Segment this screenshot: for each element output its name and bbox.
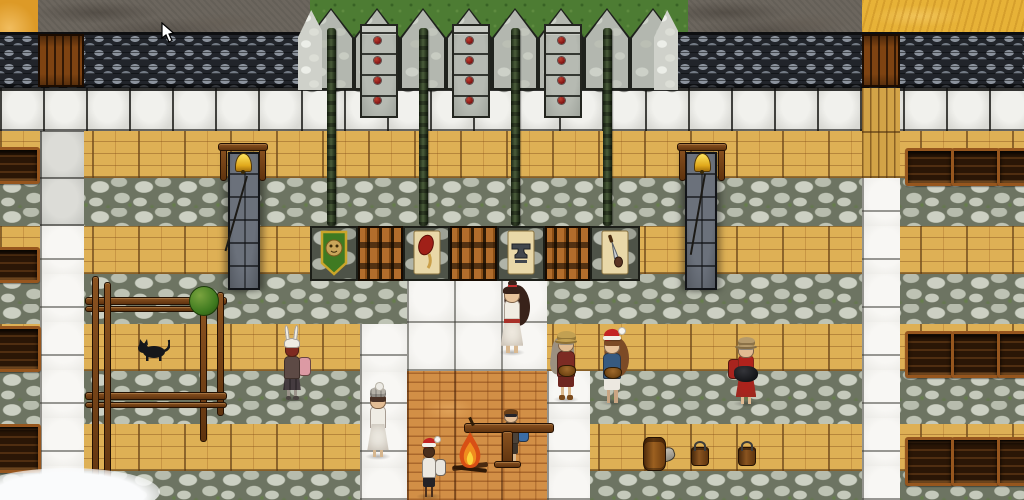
santa-hat-pom [618, 327, 626, 335]
butcher-sign-icon [413, 230, 441, 275]
east-path-wood [862, 88, 900, 178]
tower-jewel [558, 37, 565, 44]
jewel-tower[interactable] [544, 24, 582, 118]
vine-pole[interactable] [511, 28, 520, 226]
bell-frame-post [259, 146, 266, 181]
glasses [505, 414, 518, 417]
leg [431, 487, 434, 497]
storage-crate[interactable] [905, 331, 954, 378]
storage-crate[interactable] [997, 148, 1024, 186]
inner-wall-bars [450, 226, 497, 281]
fence-post[interactable] [92, 276, 99, 500]
bell-frame-crossbar [677, 143, 727, 151]
held-bowl [558, 365, 576, 377]
terrain-prairie [862, 0, 1024, 36]
jewel-tower[interactable] [452, 24, 490, 118]
east-path-white [862, 178, 900, 500]
tower-jewel [466, 57, 473, 64]
leg [614, 390, 618, 403]
santa-hat-brim [603, 336, 621, 340]
torso [284, 356, 300, 379]
sign-anvil[interactable] [507, 230, 535, 276]
character-shadow [279, 396, 305, 403]
tower-jewel [466, 97, 473, 104]
terrain-dirt-road-right [688, 0, 862, 36]
bell-frame-crossbar [218, 143, 268, 151]
storage-crate[interactable] [951, 148, 1000, 186]
lion-shield-icon [320, 230, 348, 276]
jewel-tower[interactable] [360, 24, 398, 118]
backpack [298, 357, 311, 376]
shelf-crate[interactable] [0, 326, 41, 372]
storage-crate[interactable] [997, 437, 1024, 486]
bell-clapper [241, 170, 245, 174]
santa-hat-pom [434, 436, 441, 443]
bench-leg [502, 431, 513, 465]
storage-crate[interactable] [951, 437, 1000, 486]
storage-crate[interactable] [905, 148, 954, 186]
shelf-crate[interactable] [0, 424, 41, 473]
storage-crate[interactable] [951, 331, 1000, 378]
character-shadow [553, 396, 579, 403]
bell-frame-post [220, 146, 227, 181]
held-pot [734, 366, 759, 382]
kitchen-sign-icon [601, 230, 629, 275]
boot [293, 396, 298, 400]
backpack [435, 459, 447, 476]
fence-post[interactable] [104, 282, 111, 500]
tower-jewel [466, 37, 473, 44]
sign-knife[interactable] [601, 230, 629, 276]
inner-wall-bars [358, 226, 403, 281]
game-viewport [0, 0, 1024, 500]
tower-jewel [558, 77, 565, 84]
campfire[interactable] [450, 428, 490, 474]
tower-jewel [374, 37, 381, 44]
leg [425, 487, 428, 497]
leg [607, 390, 611, 403]
sign-ham[interactable] [413, 230, 441, 276]
bell-frame-post [679, 146, 686, 181]
bucket-handle [694, 441, 706, 451]
santa-hat-brim [422, 443, 436, 446]
shelf-crate[interactable] [0, 147, 40, 184]
sapling-trunk [200, 310, 207, 442]
west-path-white [40, 226, 84, 500]
cursor-arrow-icon [160, 22, 176, 44]
tower-jewel [558, 57, 565, 64]
knit-hat-pom [375, 382, 384, 391]
character-shadow [733, 400, 759, 407]
hair-crown [503, 286, 520, 294]
barrel[interactable] [643, 437, 666, 471]
hair-band [508, 285, 517, 288]
storage-crate[interactable] [905, 437, 954, 486]
west-path-stone [40, 131, 84, 226]
character-shadow [416, 493, 442, 500]
fur-cap-brim [555, 339, 577, 344]
sapling-leaves[interactable] [189, 286, 219, 316]
bench-foot [494, 461, 521, 468]
bell-clapper [700, 170, 704, 174]
sash [504, 319, 520, 323]
west-bell[interactable] [220, 143, 266, 181]
bell-frame-post [718, 146, 725, 181]
tower-jewel [374, 57, 381, 64]
tower-jewel [374, 77, 381, 84]
character-shadow [499, 349, 525, 356]
fire-icon [450, 428, 490, 474]
castle-wall [676, 32, 1024, 88]
held-bowl [604, 367, 622, 379]
east-bell[interactable] [679, 143, 725, 181]
plaza-north [407, 274, 547, 371]
tower-jewel [374, 97, 381, 104]
boot [559, 395, 565, 400]
cat-icon [136, 336, 170, 362]
east-gate-door[interactable] [862, 34, 900, 87]
storage-crate[interactable] [997, 331, 1024, 378]
tower-jewel [558, 97, 565, 104]
boot [567, 395, 573, 400]
west-gate-door[interactable] [38, 34, 84, 87]
shield-lion[interactable] [320, 230, 348, 276]
smith-sign-icon [507, 230, 535, 275]
shelf-crate[interactable] [0, 247, 40, 283]
vine-pole[interactable] [419, 28, 428, 226]
bucket[interactable] [738, 447, 756, 466]
black-cat[interactable] [136, 336, 170, 362]
character-shadow [599, 399, 625, 406]
torso [422, 457, 436, 478]
character-shadow [365, 453, 391, 460]
mouse-cursor [160, 22, 176, 44]
bucket-handle [741, 441, 753, 451]
vine-pole[interactable] [327, 28, 336, 226]
tower-jewel [466, 77, 473, 84]
boot [286, 396, 291, 400]
vine-pole[interactable] [603, 28, 612, 226]
bucket[interactable] [691, 447, 709, 466]
inner-wall-bars [545, 226, 590, 281]
